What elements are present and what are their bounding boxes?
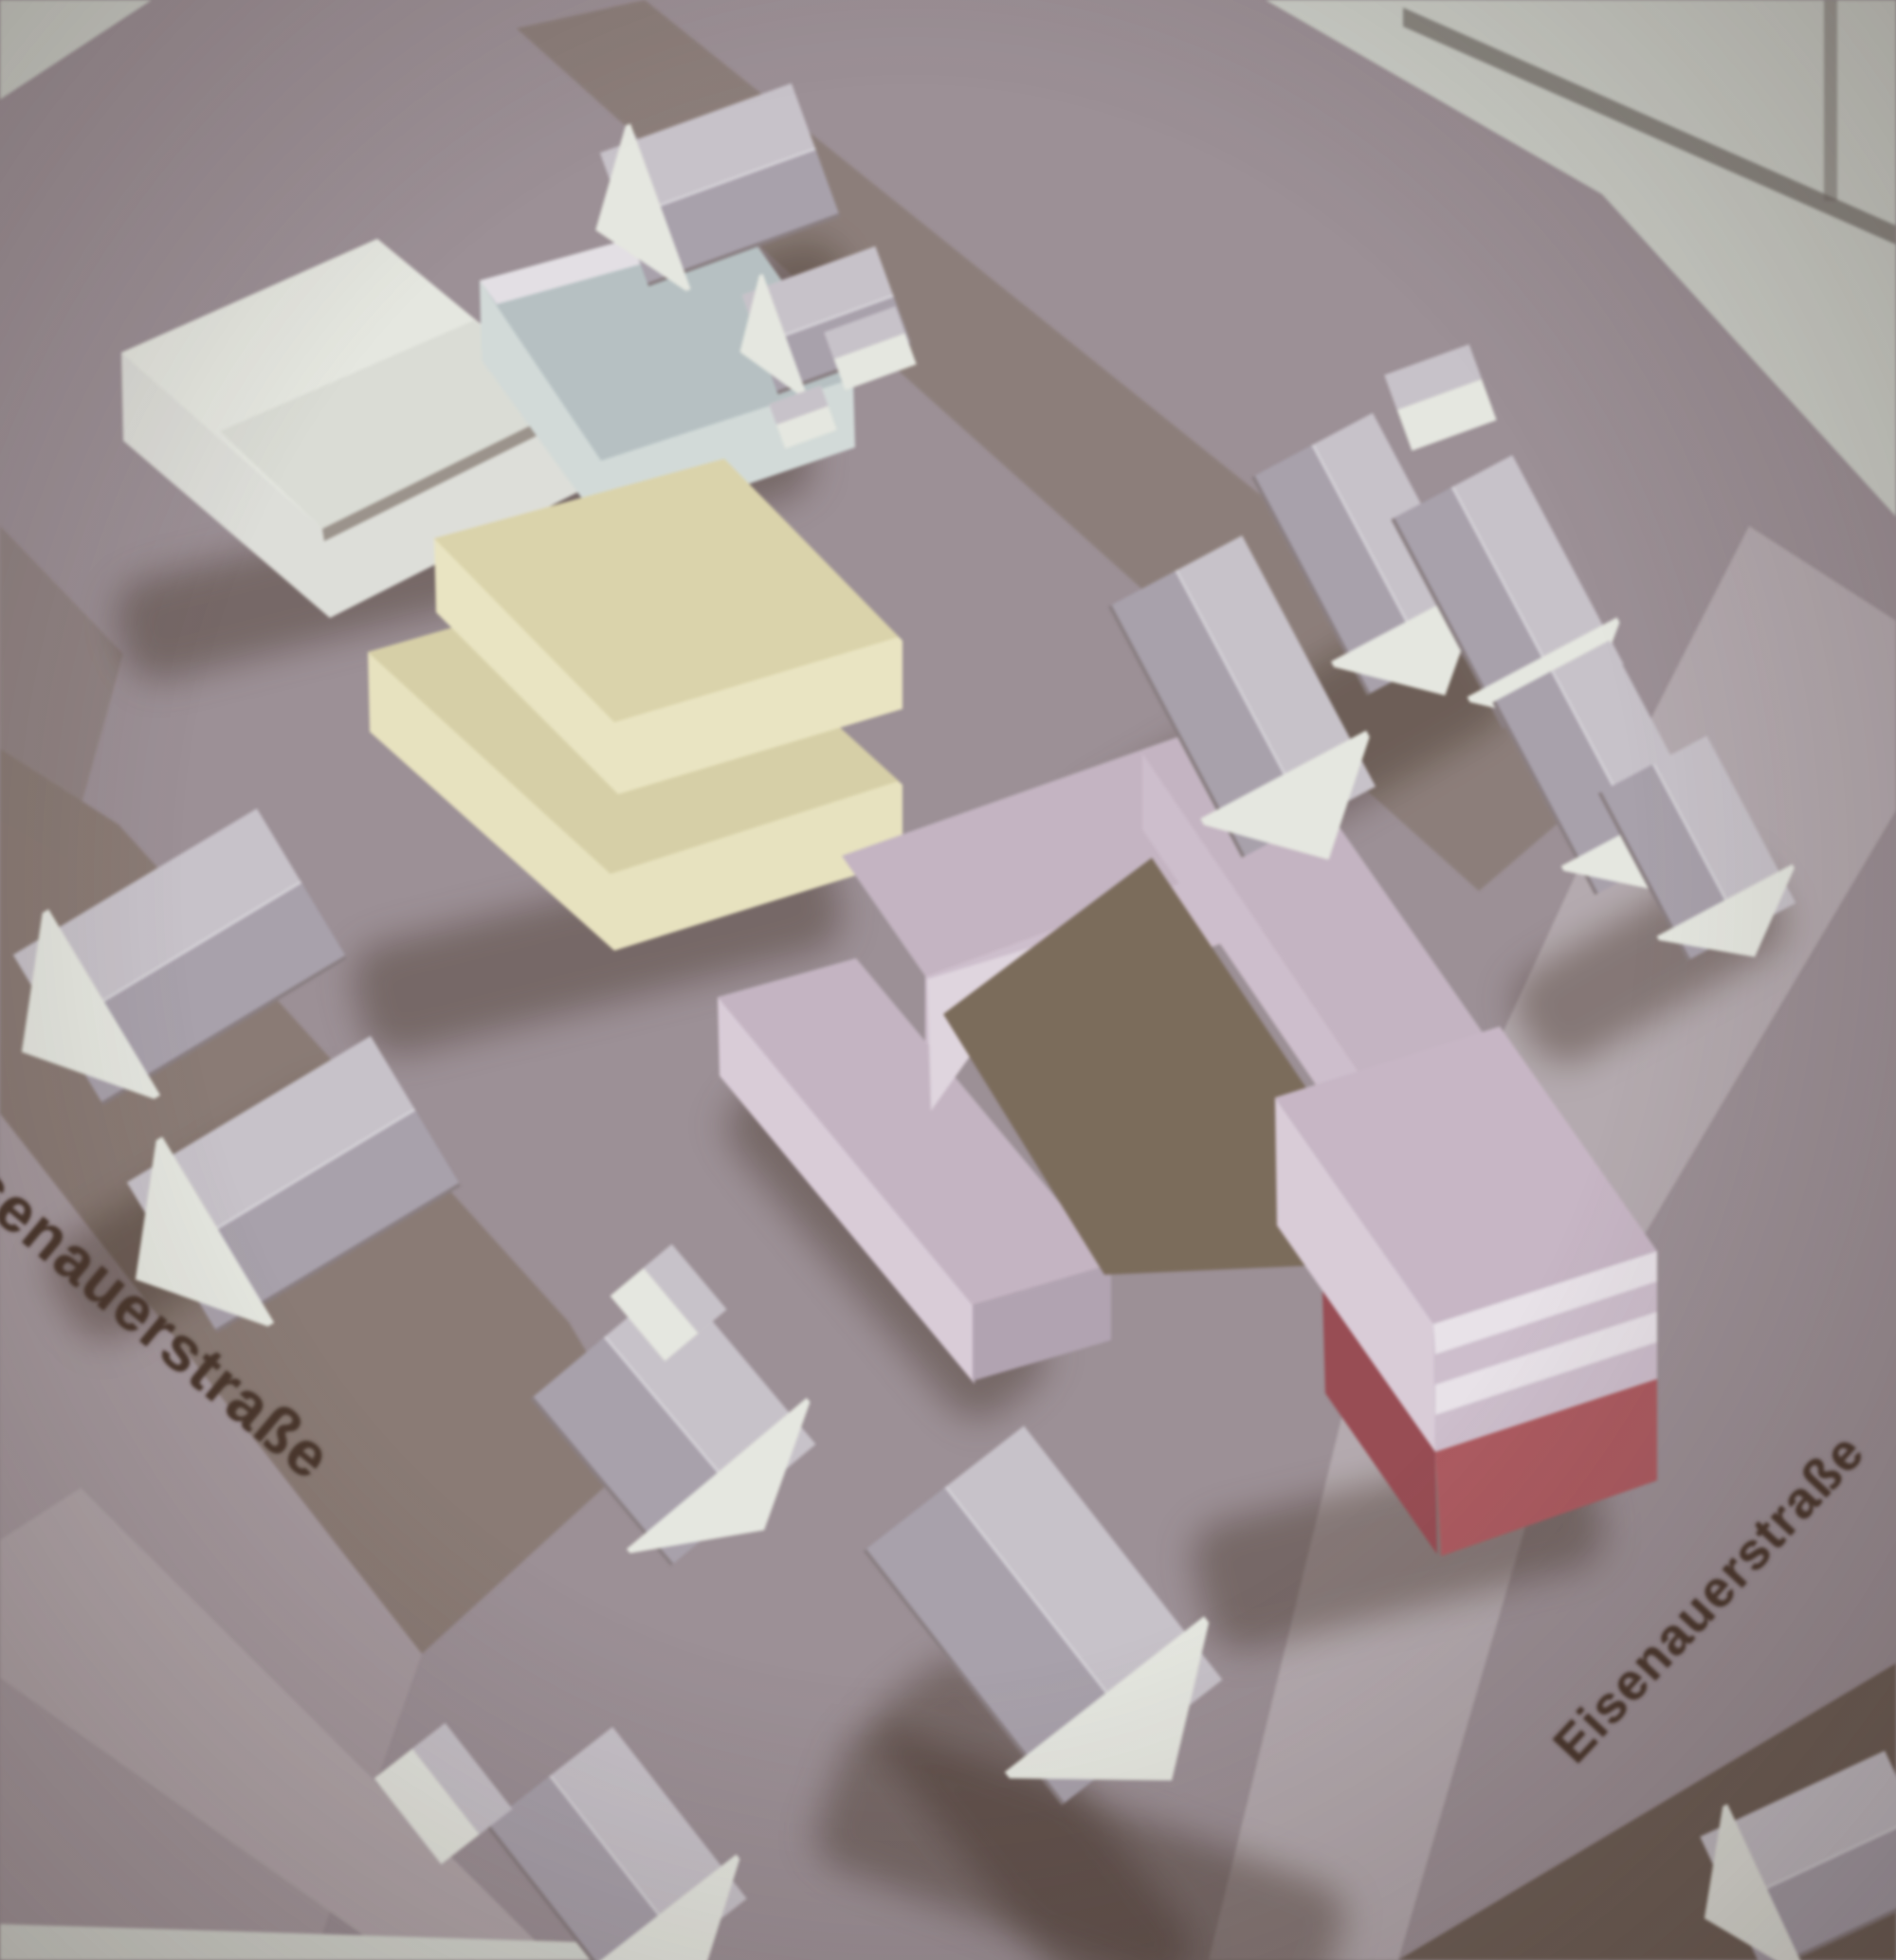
small-cube-right [1384,344,1496,450]
tree-sketch [1109,1678,1280,1886]
tree-sketch-brown [1356,929,1545,1156]
tree-sketch [57,379,180,531]
tree-sketch [379,1033,521,1204]
tree-sketch-courtyard [929,1213,1081,1393]
tree-sketch [972,265,1076,398]
house-bottom-left [485,1727,747,1960]
tree-sketch-dark [839,445,972,607]
site-plan-scene: isenauerstraße Eisenauerstraße [0,0,1896,1960]
tree-sketch [341,19,474,180]
site-model-photo: isenauerstraße Eisenauerstraße [0,0,1896,1960]
